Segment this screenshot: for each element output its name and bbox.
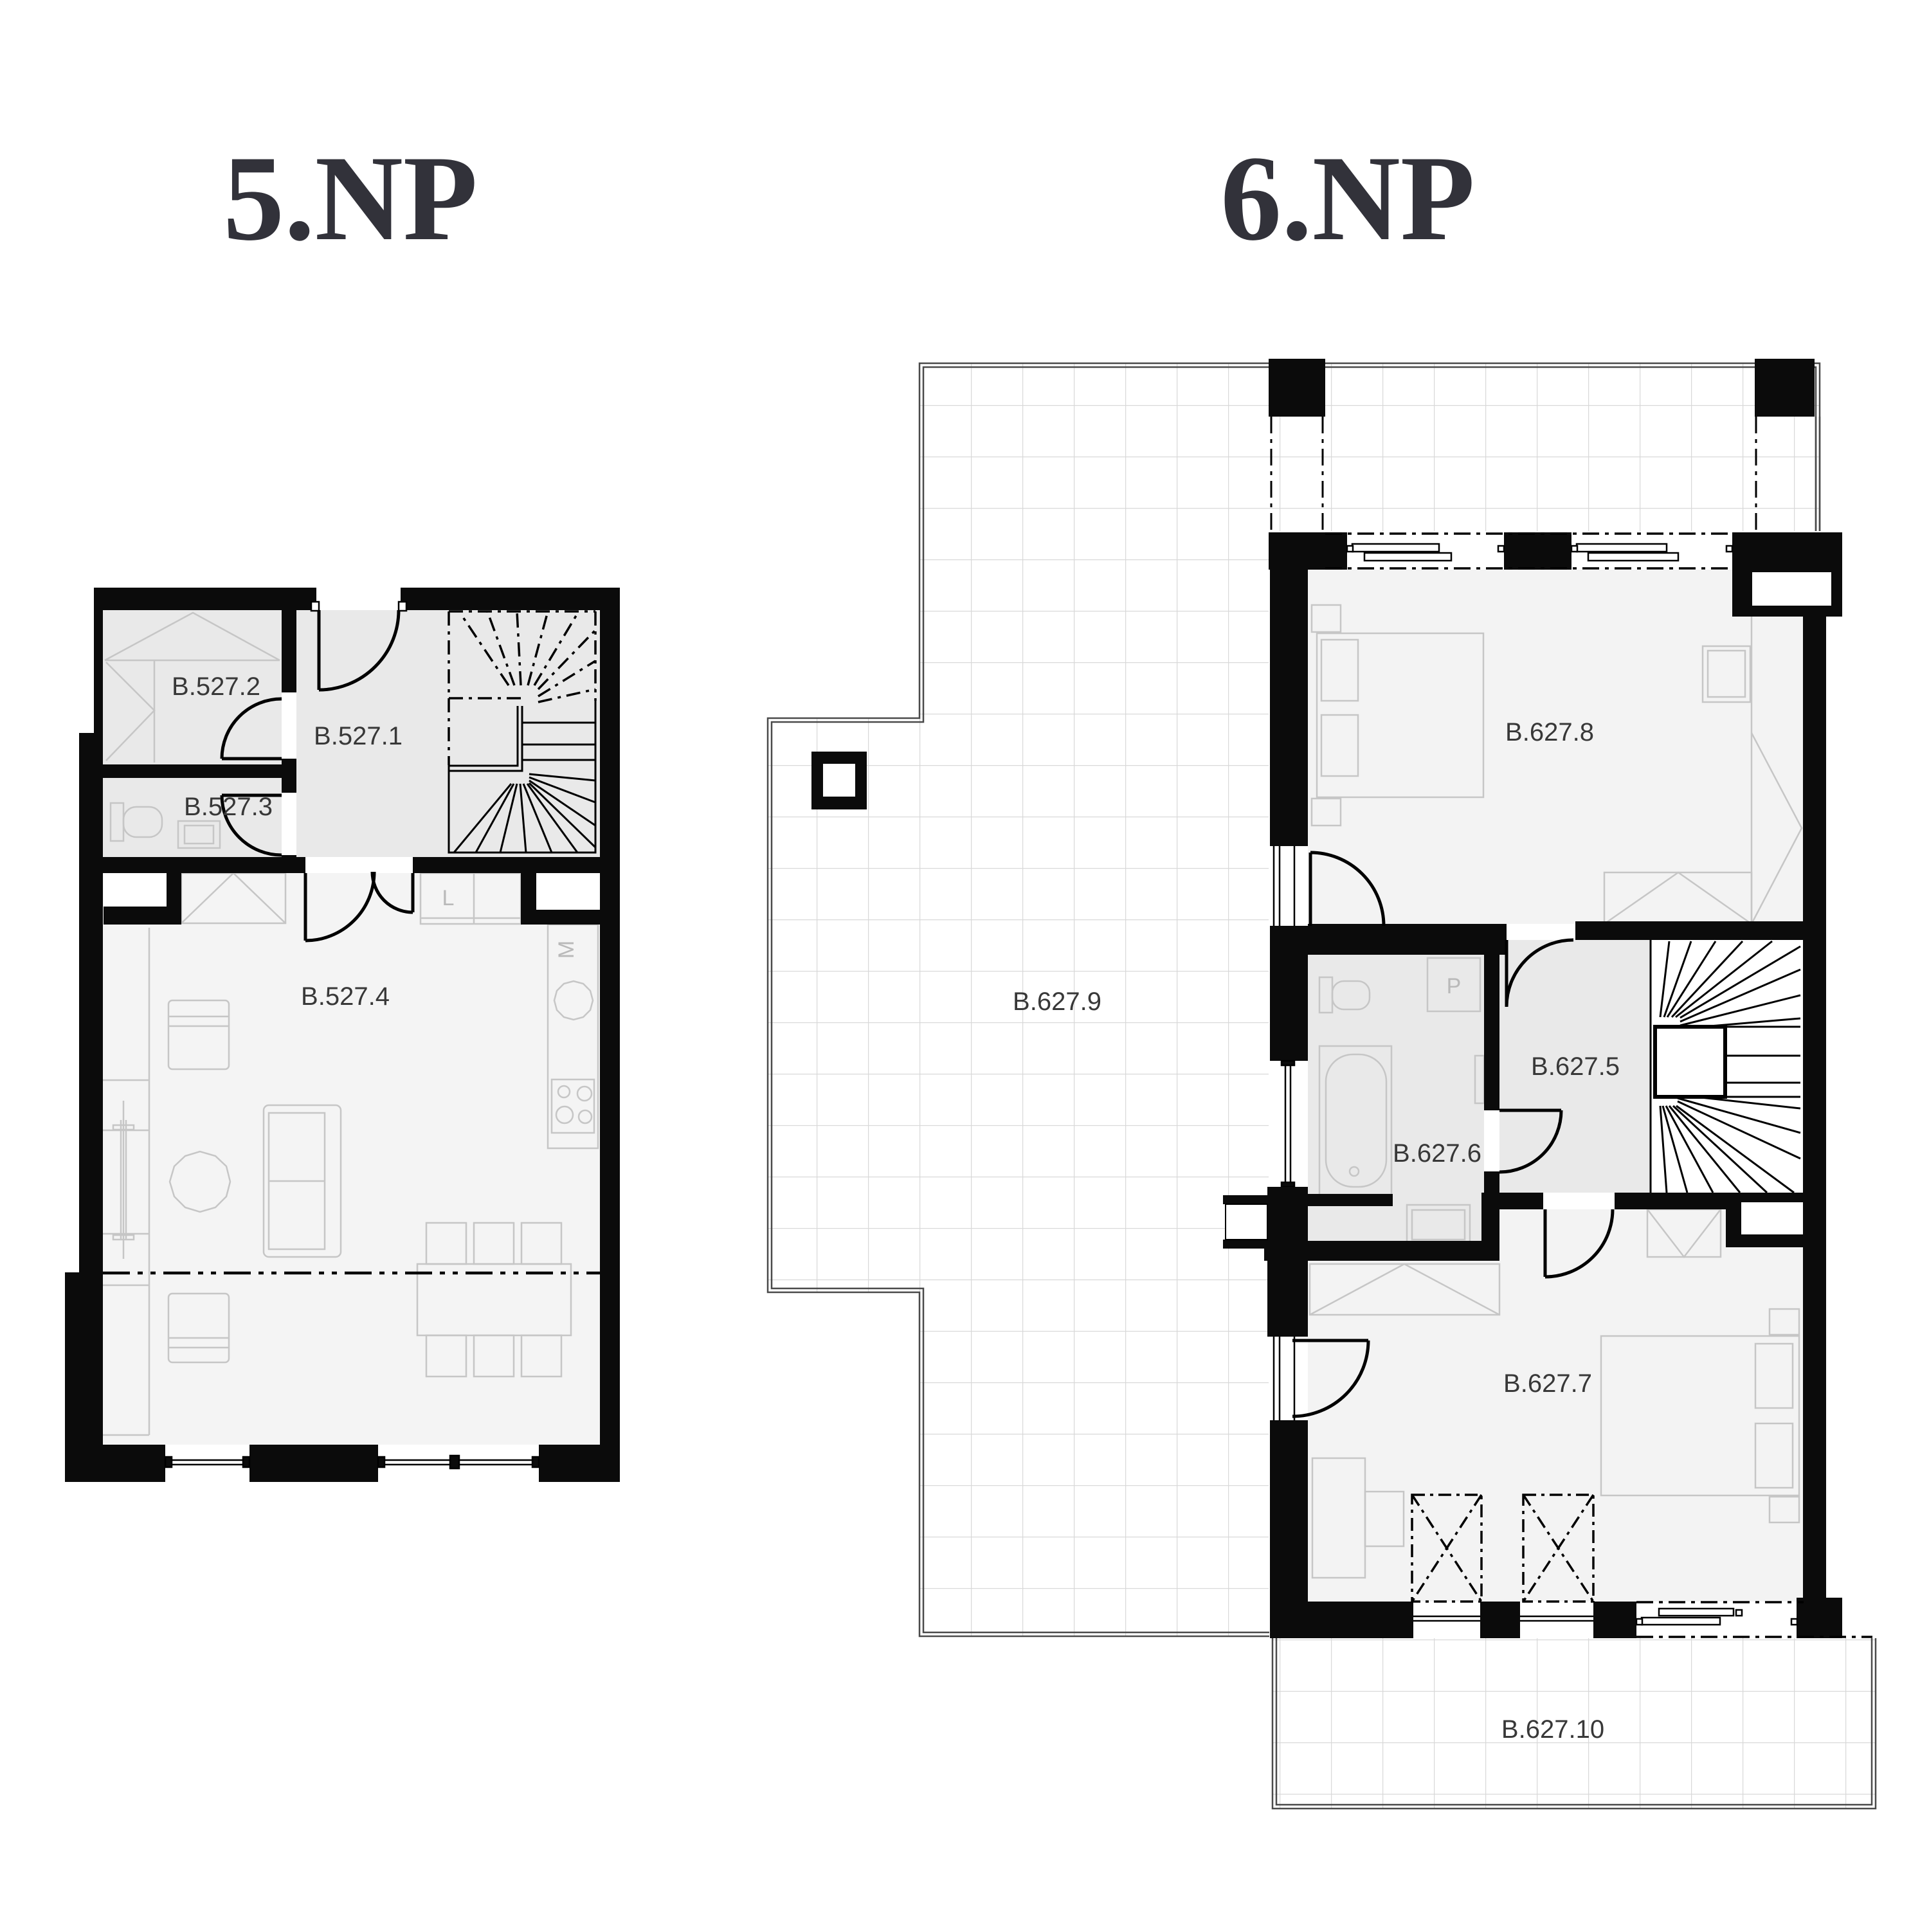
svg-text:B.527.2: B.527.2	[172, 673, 260, 701]
svg-text:6.NP: 6.NP	[1220, 131, 1475, 266]
svg-text:B.627.6: B.627.6	[1393, 1139, 1481, 1168]
svg-text:B.627.9: B.627.9	[1013, 988, 1101, 1016]
svg-text:B.627.10: B.627.10	[1501, 1715, 1604, 1744]
svg-text:B.627.8: B.627.8	[1505, 718, 1594, 746]
svg-text:B.527.3: B.527.3	[184, 793, 273, 821]
svg-text:5.NP: 5.NP	[223, 131, 478, 266]
svg-text:L: L	[442, 886, 455, 910]
svg-text:P: P	[1447, 974, 1462, 998]
svg-text:M: M	[554, 941, 579, 959]
svg-text:B.527.4: B.527.4	[301, 982, 390, 1011]
svg-text:B.627.7: B.627.7	[1503, 1369, 1592, 1398]
svg-text:B.527.1: B.527.1	[314, 722, 403, 750]
svg-text:B.627.5: B.627.5	[1531, 1052, 1620, 1081]
